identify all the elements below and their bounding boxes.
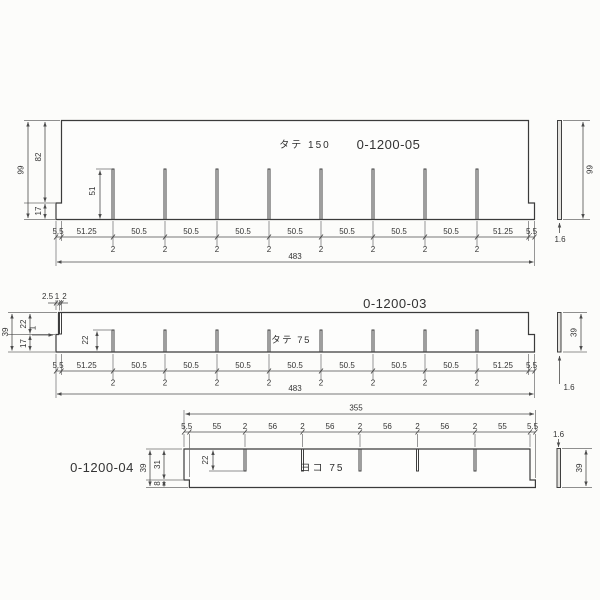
dim-label: 2 [423, 379, 428, 388]
tate150-outline [56, 121, 535, 220]
dim-label: 50.5 [131, 227, 147, 236]
dim-label: 2 [243, 422, 248, 431]
dim-label: 56 [440, 422, 449, 431]
dim-label: 55 [498, 422, 507, 431]
dim-label: 2 [475, 245, 480, 254]
dim-label: 17 [34, 206, 43, 215]
dim-label: 2 [475, 379, 480, 388]
dim-label: 22 [201, 455, 210, 464]
dim-label: 22 [19, 319, 28, 328]
dim-label: 2 [473, 422, 478, 431]
dim-label: 50.5 [443, 361, 459, 370]
dim-label: 50.5 [235, 361, 251, 370]
dim-label: 5.5 [52, 227, 64, 236]
dim-label: 50.5 [183, 227, 199, 236]
dim-label: 39 [1, 327, 10, 336]
dim-label: 56 [383, 422, 392, 431]
dim-label: 50.5 [339, 361, 355, 370]
tate150-side-view [558, 121, 562, 220]
dim-label: 2 [62, 292, 67, 301]
dim-label: 5.5 [526, 227, 538, 236]
dim-label: 50.5 [391, 227, 407, 236]
yoko75-side-view [557, 449, 561, 488]
dim-label: 2 [111, 245, 116, 254]
drawing-sheet: 99 82 17 51 5.5 51.25 50.5 50.5 50.5 50.… [0, 0, 600, 600]
dim-label: 50.5 [183, 361, 199, 370]
dim-label: 2 [319, 245, 324, 254]
dim-label: 2 [111, 379, 116, 388]
dim-label: 99 [17, 165, 26, 174]
dim-label: 50.5 [131, 361, 147, 370]
dim-label: 39 [575, 463, 584, 472]
tate75-side-view [558, 313, 562, 353]
part-number: 0-1200-05 [357, 137, 421, 152]
dim-label: 56 [326, 422, 335, 431]
dim-label: 56 [268, 422, 277, 431]
dim-label: 50.5 [339, 227, 355, 236]
part-name-label: ヨコ 75 [301, 463, 345, 474]
part-name-label: タテ 150 [279, 139, 330, 151]
dim-label: 8 [153, 481, 162, 486]
dim-label: 51 [88, 186, 97, 195]
dim-label: 55 [212, 422, 221, 431]
part-number: 0-1200-04 [70, 460, 134, 475]
dim-label: 2 [267, 379, 272, 388]
part-number: 0-1200-03 [363, 296, 427, 311]
tate75-outline [56, 313, 535, 353]
dim-label: 2 [423, 245, 428, 254]
dim-label: 50.5 [235, 227, 251, 236]
part-name-label: タテ 75 [271, 335, 311, 346]
dim-label: 2 [358, 422, 363, 431]
technical-drawing-canvas: 99 82 17 51 5.5 51.25 50.5 50.5 50.5 50.… [0, 0, 600, 600]
dim-label: 2 [300, 422, 305, 431]
dim-label: 2 [319, 379, 324, 388]
dim-label-total: 483 [288, 252, 302, 261]
dim-label: 39 [570, 328, 579, 337]
dim-label: 17 [19, 339, 28, 348]
drawing-yoko75: 355 5.5 55 2 56 2 56 2 56 2 56 2 55 5.5 … [70, 404, 592, 488]
dim-label: 5.5 [52, 361, 64, 370]
dim-label: 1.6 [553, 430, 565, 439]
dim-label: 50.5 [287, 227, 303, 236]
dim-label: 1 [29, 325, 38, 330]
dim-label: 51.25 [493, 227, 514, 236]
dim-label: 2 [215, 379, 220, 388]
dim-label: 31 [153, 460, 162, 469]
dim-label: 51.25 [77, 361, 98, 370]
dim-label: 5.5 [527, 422, 539, 431]
dim-label: 22 [81, 335, 90, 344]
dim-label: 2 [163, 379, 168, 388]
dim-label: 2 [415, 422, 420, 431]
dim-label-total: 355 [349, 404, 363, 413]
drawing-tate150: 99 82 17 51 5.5 51.25 50.5 50.5 50.5 50.… [17, 121, 595, 267]
yoko75-outline [184, 449, 535, 488]
dim-label: 1.6 [563, 383, 575, 392]
dim-label: 1 [55, 292, 60, 301]
dim-label: 2.5 [42, 292, 54, 301]
dim-label: 50.5 [443, 227, 459, 236]
dim-label: 1.6 [554, 235, 566, 244]
dim-label: 99 [586, 165, 595, 174]
dim-label-total: 483 [288, 384, 302, 393]
dim-label: 2 [215, 245, 220, 254]
drawing-tate75: 2.5 1 2 39 22 17 1 22 5.5 51.25 50.5 50.… [1, 292, 587, 398]
dim-label: 2 [371, 245, 376, 254]
dim-label: 39 [139, 463, 148, 472]
dim-label: 2 [371, 379, 376, 388]
dim-label: 51.25 [493, 361, 514, 370]
dim-label: 5.5 [181, 422, 193, 431]
dim-label: 2 [163, 245, 168, 254]
dim-label: 51.25 [77, 227, 98, 236]
dim-label: 50.5 [391, 361, 407, 370]
dim-label: 50.5 [287, 361, 303, 370]
dim-label: 2 [267, 245, 272, 254]
dim-label: 5.5 [526, 361, 538, 370]
dim-label: 82 [34, 152, 43, 161]
